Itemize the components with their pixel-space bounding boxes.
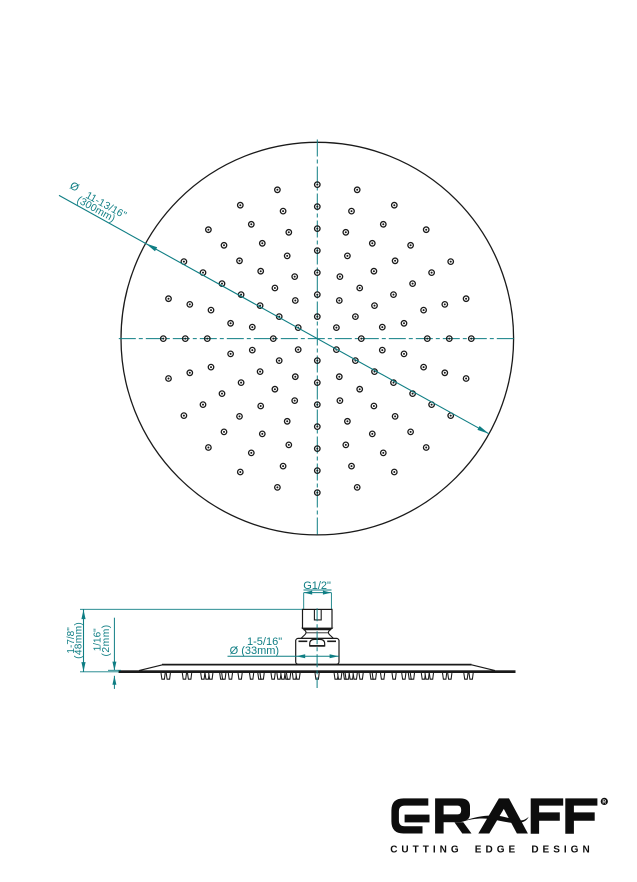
svg-text:(2mm): (2mm) xyxy=(101,624,112,656)
svg-text:CUTTING EDGE DESIGN: CUTTING EDGE DESIGN xyxy=(390,844,593,855)
svg-text:R: R xyxy=(602,800,606,806)
svg-text:(48mm): (48mm) xyxy=(73,622,84,659)
svg-text:Ø (33mm): Ø (33mm) xyxy=(230,645,280,657)
